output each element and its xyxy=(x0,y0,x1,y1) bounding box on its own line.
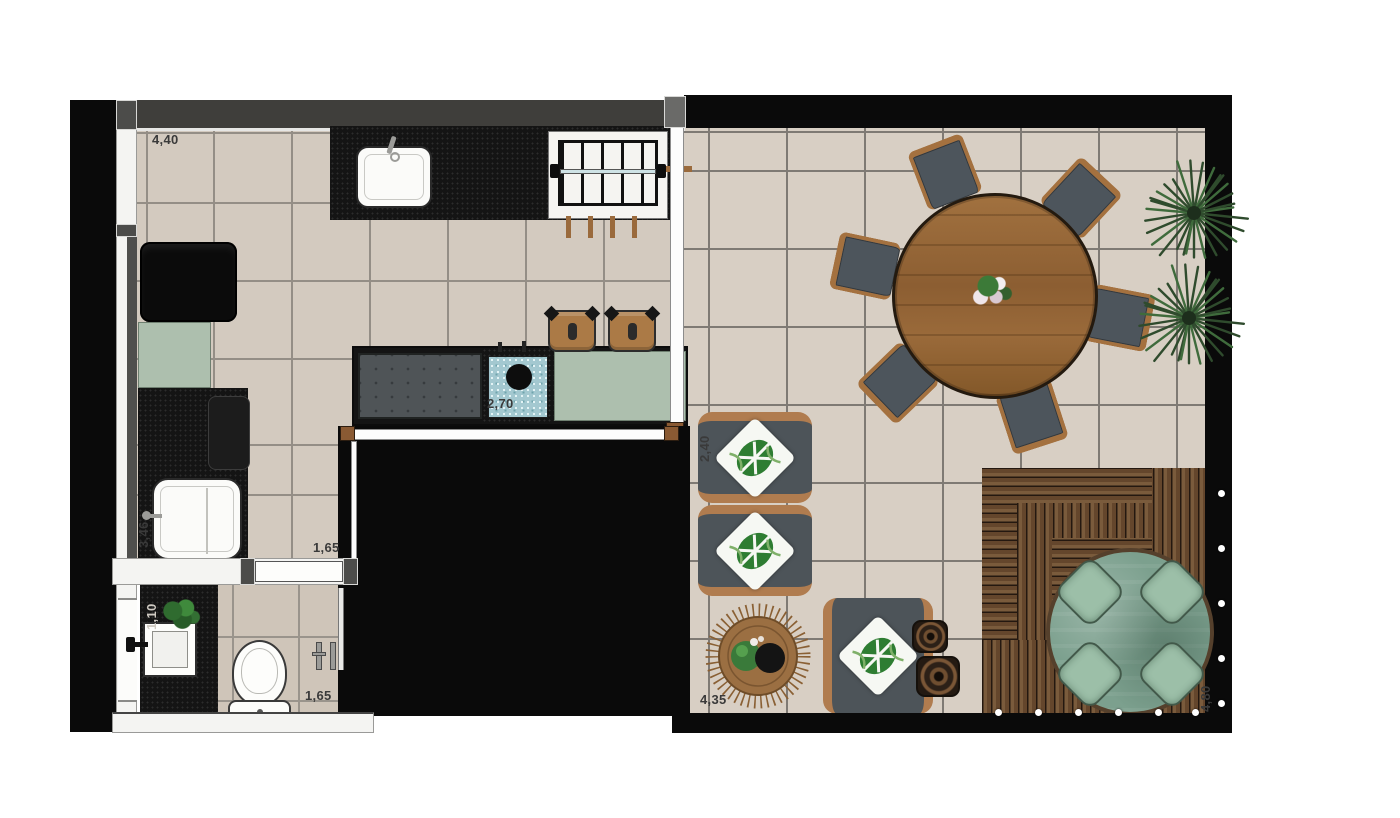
dim-label-4-35: 4,35 xyxy=(700,692,727,707)
deck-light xyxy=(1075,709,1082,716)
lounge-chair xyxy=(698,412,812,503)
deck-light xyxy=(1218,490,1225,497)
dim-label-1-10: 1,10 xyxy=(144,603,159,630)
bar-stool xyxy=(548,310,596,352)
dim-label-1-65-hall: 1,65 xyxy=(313,540,340,555)
bathroom-bottom-wall xyxy=(112,712,374,733)
table-centerpiece xyxy=(962,266,1024,316)
deck-light xyxy=(1218,700,1225,707)
glass-partition xyxy=(671,128,683,428)
wood-post xyxy=(664,426,679,441)
void-area xyxy=(338,426,690,716)
shower-glass xyxy=(338,588,344,670)
kitchen-island xyxy=(352,346,688,426)
side-table xyxy=(912,620,948,653)
prep-faucet xyxy=(142,511,151,520)
void-glass-rail xyxy=(352,430,678,439)
grill-handle xyxy=(610,216,615,238)
dim-label-4-40: 4,40 xyxy=(152,132,179,147)
palm-plant xyxy=(1132,262,1246,374)
grill-handle xyxy=(566,216,571,238)
dim-label-2-40: 2,40 xyxy=(697,435,712,462)
sage-cabinet xyxy=(138,322,211,388)
dim-label-3-46: 3,46 xyxy=(136,521,151,548)
deck-light xyxy=(995,709,1002,716)
leaf-pillow xyxy=(714,416,796,498)
bathroom-sink-basin xyxy=(152,631,188,668)
dim-label-4-80: 4,80 xyxy=(1198,685,1213,712)
deck-light xyxy=(1155,709,1162,716)
cooktop xyxy=(208,396,250,470)
lounge-chair xyxy=(698,505,812,596)
sink-divider xyxy=(206,488,208,554)
deck-light xyxy=(1218,600,1225,607)
partition-top-cap xyxy=(664,96,686,128)
stool-handle-slot xyxy=(628,323,637,340)
door-jamb xyxy=(240,558,255,585)
island-drain xyxy=(506,364,532,390)
dim-label-2-70: 2,70 xyxy=(487,396,514,411)
terrace-bottom-wall xyxy=(672,713,1232,733)
exterior-left-band xyxy=(70,100,118,732)
kitchen-prep-sink xyxy=(152,478,242,560)
shower-fixture xyxy=(316,642,322,670)
kitchen-faucet-base xyxy=(390,152,400,162)
shower-valve xyxy=(312,652,326,656)
deck-light xyxy=(1218,545,1225,552)
bar-stool xyxy=(608,310,656,352)
counter-plant xyxy=(156,592,204,634)
wall-cap xyxy=(116,224,137,237)
grill-knob-left xyxy=(550,164,559,178)
wood-post xyxy=(340,426,355,441)
palm-plant xyxy=(1138,158,1250,268)
grill-handle xyxy=(588,216,593,238)
island-sage-top xyxy=(554,351,686,421)
door-jamb xyxy=(343,558,358,585)
shower-fixture xyxy=(330,642,336,670)
island-faucet xyxy=(498,342,502,352)
side-table xyxy=(916,656,960,697)
wall-cap xyxy=(116,100,137,130)
island-bench xyxy=(358,353,482,419)
leaf-pillow xyxy=(837,615,919,697)
deck-light xyxy=(1035,709,1042,716)
refrigerator xyxy=(140,242,237,322)
floor-plan-canvas: 4,40 2,70 1,65 3,46 1,10 1,65 2,40 4,35 … xyxy=(0,0,1400,818)
prep-sink-basin xyxy=(160,486,234,552)
island-faucet xyxy=(522,341,526,352)
dining-chair xyxy=(829,231,902,301)
dim-label-1-65-bath: 1,65 xyxy=(305,688,332,703)
bathroom-faucet xyxy=(126,637,135,652)
living-top-wall xyxy=(684,95,1232,128)
deck-light xyxy=(1218,655,1225,662)
void-glass-side xyxy=(352,442,356,560)
toilet-bowl xyxy=(232,640,287,706)
hot-tub xyxy=(1046,548,1214,716)
grill-knob-right xyxy=(657,164,666,178)
lounge-chair xyxy=(823,598,933,714)
deck-light xyxy=(1115,709,1122,716)
toilet-seat xyxy=(241,648,278,694)
stool-handle-slot xyxy=(568,323,577,340)
leaf-pillow xyxy=(714,509,796,591)
grill-handle xyxy=(632,216,637,238)
grill-skewer xyxy=(560,169,656,174)
bathroom-sliding-door xyxy=(255,561,343,582)
bathroom-right-wall xyxy=(346,585,360,717)
